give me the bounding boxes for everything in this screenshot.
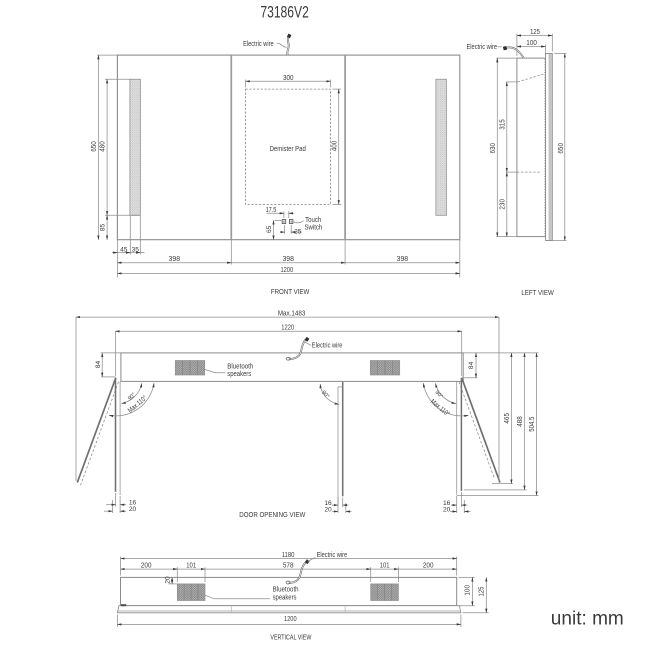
svg-text:35: 35	[132, 246, 140, 253]
svg-text:20: 20	[324, 506, 332, 513]
svg-text:200: 200	[141, 563, 152, 570]
svg-text:100: 100	[526, 40, 537, 47]
svg-text:Touch: Touch	[305, 217, 321, 224]
svg-text:1180: 1180	[282, 552, 295, 559]
svg-text:Electric wire: Electric wire	[312, 343, 343, 350]
svg-text:Electric wire: Electric wire	[243, 41, 274, 48]
svg-text:LEFT VIEW: LEFT VIEW	[521, 288, 554, 297]
svg-text:630: 630	[490, 143, 497, 154]
svg-text:100: 100	[465, 585, 472, 596]
svg-text:45: 45	[120, 246, 128, 253]
svg-text:90°: 90°	[434, 390, 444, 400]
svg-text:FRONT VIEW: FRONT VIEW	[271, 287, 310, 296]
svg-text:398: 398	[397, 256, 409, 263]
svg-text:20: 20	[129, 506, 137, 513]
svg-text:200: 200	[423, 563, 434, 570]
svg-text:101: 101	[380, 563, 390, 570]
svg-text:speakers: speakers	[227, 371, 251, 378]
svg-text:488: 488	[517, 416, 524, 427]
svg-text:Switch: Switch	[305, 224, 323, 231]
svg-text:480: 480	[100, 141, 107, 152]
svg-text:85: 85	[100, 224, 107, 232]
svg-text:20: 20	[443, 506, 451, 513]
svg-text:398: 398	[169, 256, 181, 263]
svg-text:Max.1483: Max.1483	[278, 310, 306, 317]
svg-text:230: 230	[499, 199, 506, 210]
svg-text:84: 84	[468, 361, 475, 369]
svg-text:25: 25	[294, 229, 302, 236]
svg-text:90°: 90°	[320, 390, 330, 400]
svg-text:650: 650	[558, 143, 565, 154]
svg-text:DOOR OPENING VIEW: DOOR OPENING VIEW	[239, 510, 305, 519]
svg-text:17.5: 17.5	[266, 207, 277, 214]
svg-text:315: 315	[499, 119, 506, 130]
svg-text:125: 125	[530, 29, 540, 36]
svg-text:Electric wire: Electric wire	[317, 552, 348, 559]
svg-text:Bluetooth: Bluetooth	[227, 363, 253, 370]
svg-text:101: 101	[186, 563, 196, 570]
svg-text:398: 398	[282, 256, 294, 263]
svg-text:84: 84	[95, 361, 102, 369]
svg-text:speakers: speakers	[273, 595, 297, 602]
svg-text:1200: 1200	[281, 267, 294, 274]
svg-text:unit: mm: unit: mm	[551, 609, 624, 630]
svg-text:65: 65	[266, 225, 273, 233]
svg-text:300: 300	[283, 75, 294, 82]
svg-text:73186V2: 73186V2	[260, 4, 309, 22]
svg-text:504.5: 504.5	[529, 417, 536, 432]
svg-text:Demister Pad: Demister Pad	[270, 146, 306, 153]
svg-text:20: 20	[165, 576, 172, 584]
svg-text:400: 400	[331, 141, 338, 152]
svg-text:90°: 90°	[127, 392, 137, 402]
svg-text:VERTICAL VIEW: VERTICAL VIEW	[270, 633, 311, 642]
svg-text:1220: 1220	[281, 325, 294, 332]
svg-text:Electric wire: Electric wire	[467, 44, 498, 51]
svg-text:Bluetooth: Bluetooth	[273, 587, 299, 594]
svg-text:1200: 1200	[284, 616, 297, 623]
svg-text:578: 578	[283, 563, 294, 570]
svg-text:125: 125	[478, 587, 485, 597]
svg-text:465: 465	[504, 413, 511, 424]
svg-text:650: 650	[91, 141, 98, 152]
